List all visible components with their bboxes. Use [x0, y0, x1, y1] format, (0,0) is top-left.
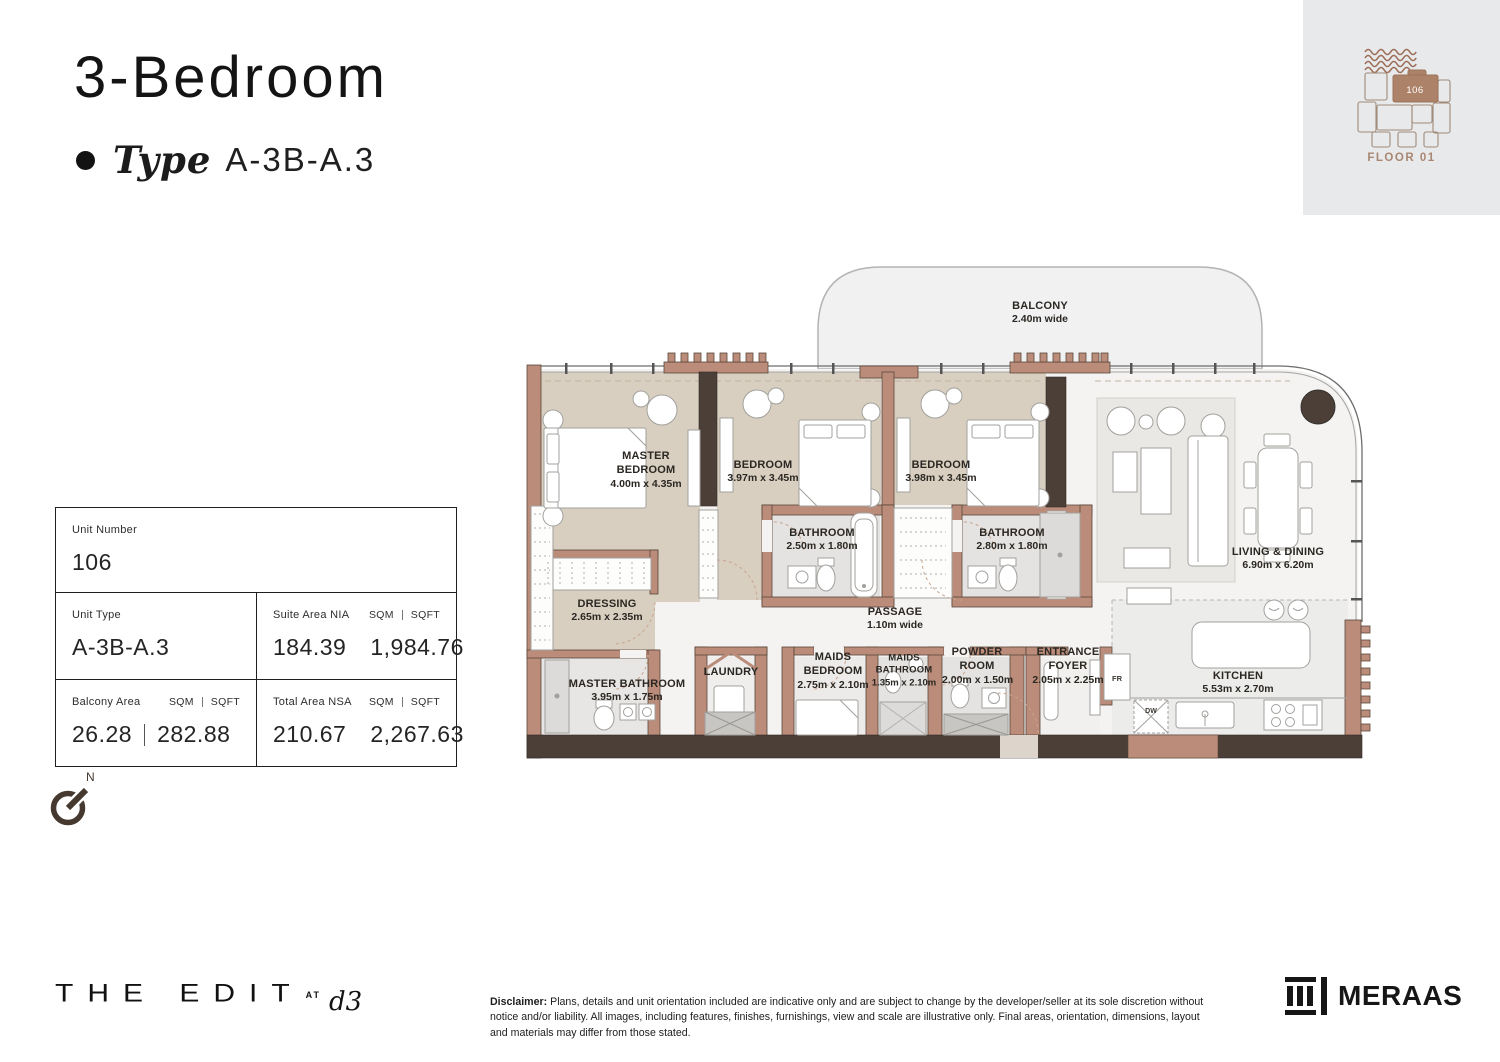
- units-label: SQMSQFT: [169, 696, 240, 708]
- balcony-area-sqm: 26.28: [72, 721, 132, 748]
- room-name: ENTRANCE FOYER: [1026, 645, 1110, 674]
- room-label-master-bathroom: MASTER BATHROOM 3.95m x 1.75m: [542, 677, 712, 705]
- disclaimer-text: Disclaimer:Plans, details and unit orien…: [490, 995, 1220, 1043]
- coffee-table2-icon: [1141, 448, 1171, 514]
- room-dims: 1.35m x 2.10m: [868, 677, 940, 689]
- room-dims: 3.95m x 1.75m: [542, 691, 712, 705]
- room-name: LAUNDRY: [704, 665, 759, 679]
- room-label-bedroom-3: BEDROOM 3.98m x 3.45m: [905, 458, 976, 486]
- disclaimer-body: Plans, details and unit orientation incl…: [490, 996, 1203, 1040]
- room-dims: 5.53m x 2.70m: [1202, 683, 1273, 697]
- north-compass: N: [46, 770, 116, 840]
- bathroom2-sink-icon: [788, 566, 816, 588]
- kitchen-sink-icon: [1176, 702, 1234, 728]
- unit-type-value: A-3B-A.3: [72, 634, 169, 661]
- unit-type-row: Type A-3B-A.3: [76, 138, 375, 182]
- room-dims: 1.10m wide: [867, 619, 923, 633]
- room-dims: 2.40m wide: [1012, 313, 1068, 327]
- total-area-label: Total Area NSA: [273, 696, 352, 708]
- bathroom2-toilet-icon: [817, 558, 835, 591]
- balcony-area-cell: Balcony Area SQMSQFT 26.28 282.88: [56, 679, 256, 766]
- highlighted-unit-number: 106: [1406, 85, 1423, 96]
- page-title: 3-Bedroom: [74, 44, 388, 111]
- floor-label: FLOOR 01: [1303, 152, 1500, 164]
- structural-column: [1301, 390, 1335, 424]
- total-area-sqm: 210.67: [273, 721, 346, 748]
- room-name: DRESSING: [571, 597, 642, 611]
- room-dims: 3.97m x 3.45m: [727, 472, 798, 486]
- brand-name: THE EDIT: [55, 980, 304, 1008]
- fridge-label: FR: [1112, 674, 1123, 683]
- room-label-master-bedroom: MASTER BEDROOM 4.00m x 4.35m: [604, 449, 688, 491]
- unit-type-label: Unit Type: [72, 609, 121, 621]
- unit-type-cell: Unit Type A-3B-A.3: [56, 592, 256, 679]
- master-dresser-icon: [688, 430, 700, 506]
- north-label: N: [86, 770, 95, 784]
- kitchen-island-icon: [1192, 622, 1310, 668]
- developer-name: MERAAS: [1338, 980, 1462, 1012]
- room-dims: 2.00m x 1.50m: [942, 673, 1012, 687]
- bathroom3-sink-icon: [968, 566, 996, 588]
- svg-text:d3: d3: [329, 987, 361, 1017]
- entry-door-gap: [1000, 735, 1038, 758]
- room-dims: 2.50m x 1.80m: [786, 540, 857, 554]
- building-footprint-map: 106: [1303, 0, 1500, 215]
- room-dims: 2.65m x 2.35m: [571, 611, 642, 625]
- room-dims: 6.90m x 6.20m: [1232, 559, 1324, 573]
- room-name: PASSAGE: [867, 605, 923, 619]
- room-label-kitchen: KITCHEN 5.53m x 2.70m: [1202, 669, 1273, 697]
- brand-at-label: AT: [306, 990, 321, 1000]
- room-dims: 3.98m x 3.45m: [905, 472, 976, 486]
- maids-bed-icon: [796, 700, 858, 735]
- d3-logo-icon: d3: [327, 980, 361, 1022]
- balcony-area-label: Balcony Area: [72, 696, 140, 708]
- room-dims: 2.75m x 2.10m: [792, 678, 874, 692]
- room-name: BEDROOM: [727, 458, 798, 472]
- room-dims: 2.80m x 1.80m: [976, 540, 1047, 554]
- unit-number-value: 106: [72, 549, 112, 576]
- meraas-logo: MERAAS: [1283, 976, 1462, 1016]
- highlighted-unit: 106: [1393, 70, 1438, 102]
- floorplan-brochure-page: 3-Bedroom Type A-3B-A.3: [0, 0, 1500, 1062]
- room-label-living-dining: LIVING & DINING 6.90m x 6.20m: [1232, 545, 1324, 573]
- stove-icon: [1264, 700, 1322, 730]
- powder-sink-icon: [982, 688, 1006, 708]
- room-name: BATHROOM: [786, 526, 857, 540]
- room-name: BEDROOM: [905, 458, 976, 472]
- unit-number-cell: Unit Number 106: [56, 508, 456, 592]
- room-name: MASTER BATHROOM: [542, 677, 712, 691]
- unit-number-label: Unit Number: [72, 524, 137, 536]
- dishwasher-icon: [1134, 700, 1168, 733]
- room-label-maids-bathroom: MAIDS BATHROOM 1.35m x 2.10m: [868, 652, 940, 689]
- room-name: KITCHEN: [1202, 669, 1273, 683]
- the-edit-logo: THE EDIT AT d3: [55, 980, 361, 1022]
- room-name: LIVING & DINING: [1232, 545, 1324, 559]
- units-label: SQMSQFT: [369, 609, 440, 621]
- room-label-bedroom-2: BEDROOM 3.97m x 3.45m: [727, 458, 798, 486]
- room-label-dressing: DRESSING 2.65m x 2.35m: [571, 597, 642, 625]
- room-dims: 4.00m x 4.35m: [604, 477, 688, 491]
- units-label: SQMSQFT: [369, 696, 440, 708]
- water-waves-icon: [1365, 50, 1416, 73]
- room-name: MAIDS BATHROOM: [868, 652, 940, 677]
- coffee-table-icon: [1113, 452, 1137, 492]
- room-label-bathroom-3: BATHROOM 2.80m x 1.80m: [976, 526, 1047, 554]
- disclaimer-prefix: Disclaimer:: [490, 996, 547, 1008]
- room-label-entrance-foyer: ENTRANCE FOYER 2.05m x 2.25m: [1026, 645, 1110, 687]
- bathroom3-toilet-icon: [999, 558, 1017, 591]
- room-name: BALCONY: [1012, 299, 1068, 313]
- room-name: BATHROOM: [976, 526, 1047, 540]
- total-area-sqft: 2,267.63: [370, 721, 464, 748]
- floor-locator-panel: 106 FLOOR 01: [1303, 0, 1500, 215]
- bench-icon: [1124, 548, 1170, 568]
- balcony-area-sqft: 282.88: [157, 721, 230, 748]
- meraas-icon: [1283, 976, 1329, 1016]
- room-name: POWDER ROOM: [942, 645, 1012, 674]
- dishwasher-label: DW: [1145, 708, 1157, 715]
- type-label: Type: [113, 138, 211, 182]
- room-name: MASTER BEDROOM: [604, 449, 688, 478]
- bullet-icon: [76, 151, 95, 170]
- room-label-laundry: LAUNDRY: [704, 665, 759, 679]
- suite-area-cell: Suite Area NIA SQMSQFT 184.39 1,984.76: [256, 592, 456, 679]
- type-value: A-3B-A.3: [225, 141, 375, 179]
- room-label-passage: PASSAGE 1.10m wide: [867, 605, 923, 633]
- suite-area-sqm: 184.39: [273, 634, 346, 661]
- sofa-icon: [1188, 436, 1228, 566]
- room-label-powder-room: POWDER ROOM 2.00m x 1.50m: [942, 645, 1012, 687]
- room-name: MAIDS BEDROOM: [792, 650, 874, 679]
- total-area-cell: Total Area NSA SQMSQFT 210.67 2,267.63: [256, 679, 456, 766]
- suite-area-sqft: 1,984.76: [370, 634, 464, 661]
- room-label-bathroom-2: BATHROOM 2.50m x 1.80m: [786, 526, 857, 554]
- room-label-maids-bedroom: MAIDS BEDROOM 2.75m x 2.10m: [792, 650, 874, 692]
- unit-info-table: Unit Number 106 Unit Type A-3B-A.3 Suite…: [55, 507, 457, 767]
- room-dims: 2.05m x 2.25m: [1026, 673, 1110, 687]
- suite-area-label: Suite Area NIA: [273, 609, 349, 621]
- side-table-icon: [1127, 588, 1171, 604]
- bottom-wall-tan-segment: [1128, 735, 1218, 758]
- room-label-balcony: BALCONY 2.40m wide: [1012, 299, 1068, 327]
